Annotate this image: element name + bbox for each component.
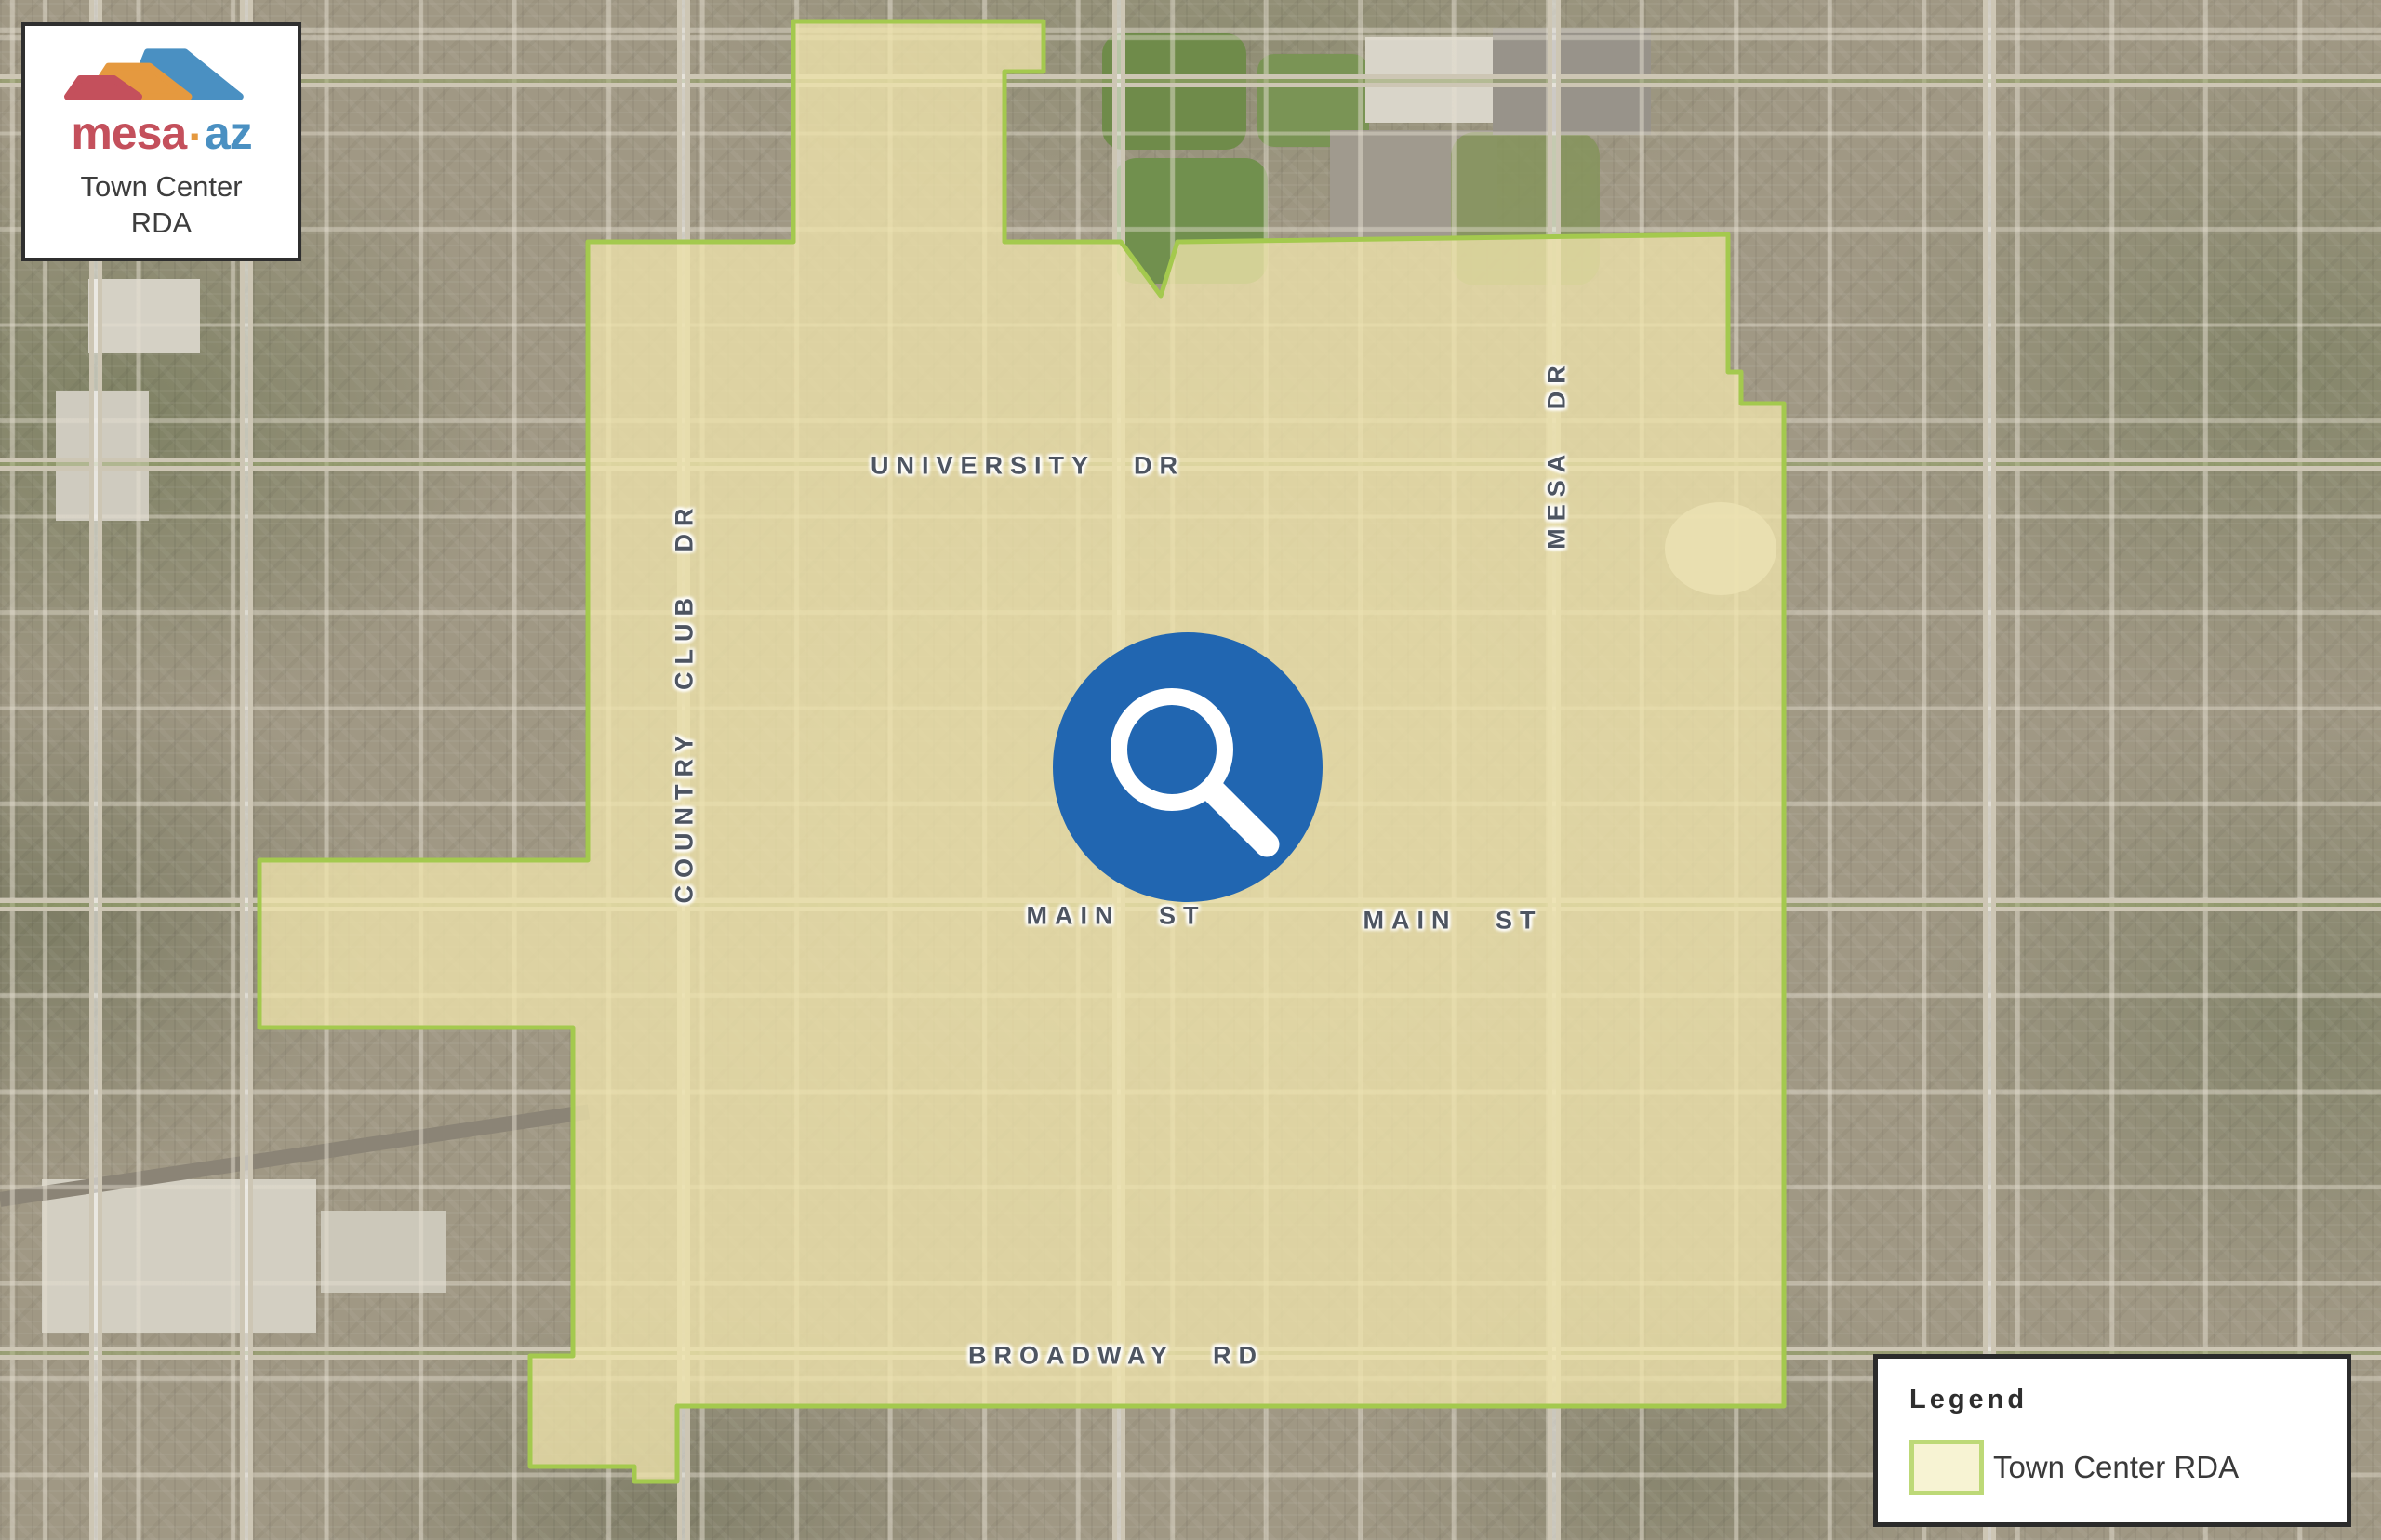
street-label-main-st-west: MAIN ST	[1027, 902, 1206, 931]
street-label-mesa-dr: MESA DR	[1543, 358, 1572, 550]
search-marker[interactable]	[1053, 632, 1323, 902]
rda-polygon	[259, 21, 1784, 1481]
wordmark-mesa: mesa	[71, 110, 186, 156]
brand-wordmark: mesa·az	[71, 110, 251, 156]
map-title: Town Center RDA	[80, 169, 242, 242]
marker-circle	[1053, 632, 1323, 902]
wordmark-az: az	[205, 110, 252, 156]
legend-item: Town Center RDA	[1909, 1440, 2347, 1495]
street-label-country-club-dr: COUNTRY CLUB DR	[671, 501, 699, 904]
street-label-broadway-rd: BROADWAY RD	[968, 1342, 1264, 1371]
legend-title: Legend	[1909, 1385, 2347, 1415]
map-canvas: UNIVERSITY DR COUNTRY CLUB DR MESA DR MA…	[0, 0, 2381, 1540]
map-title-line2: RDA	[80, 206, 242, 242]
legend-item-label: Town Center RDA	[1993, 1450, 2239, 1485]
mesa-az-logo-icon	[64, 46, 259, 104]
title-card: mesa·az Town Center RDA	[21, 22, 301, 261]
legend-swatch-town-center-rda	[1909, 1440, 1984, 1495]
street-label-university-dr: UNIVERSITY DR	[871, 452, 1185, 481]
street-label-main-st-east: MAIN ST	[1363, 907, 1543, 936]
legend: Legend Town Center RDA	[1873, 1354, 2351, 1527]
wordmark-dot: ·	[186, 113, 205, 160]
map-title-line1: Town Center	[80, 169, 242, 206]
